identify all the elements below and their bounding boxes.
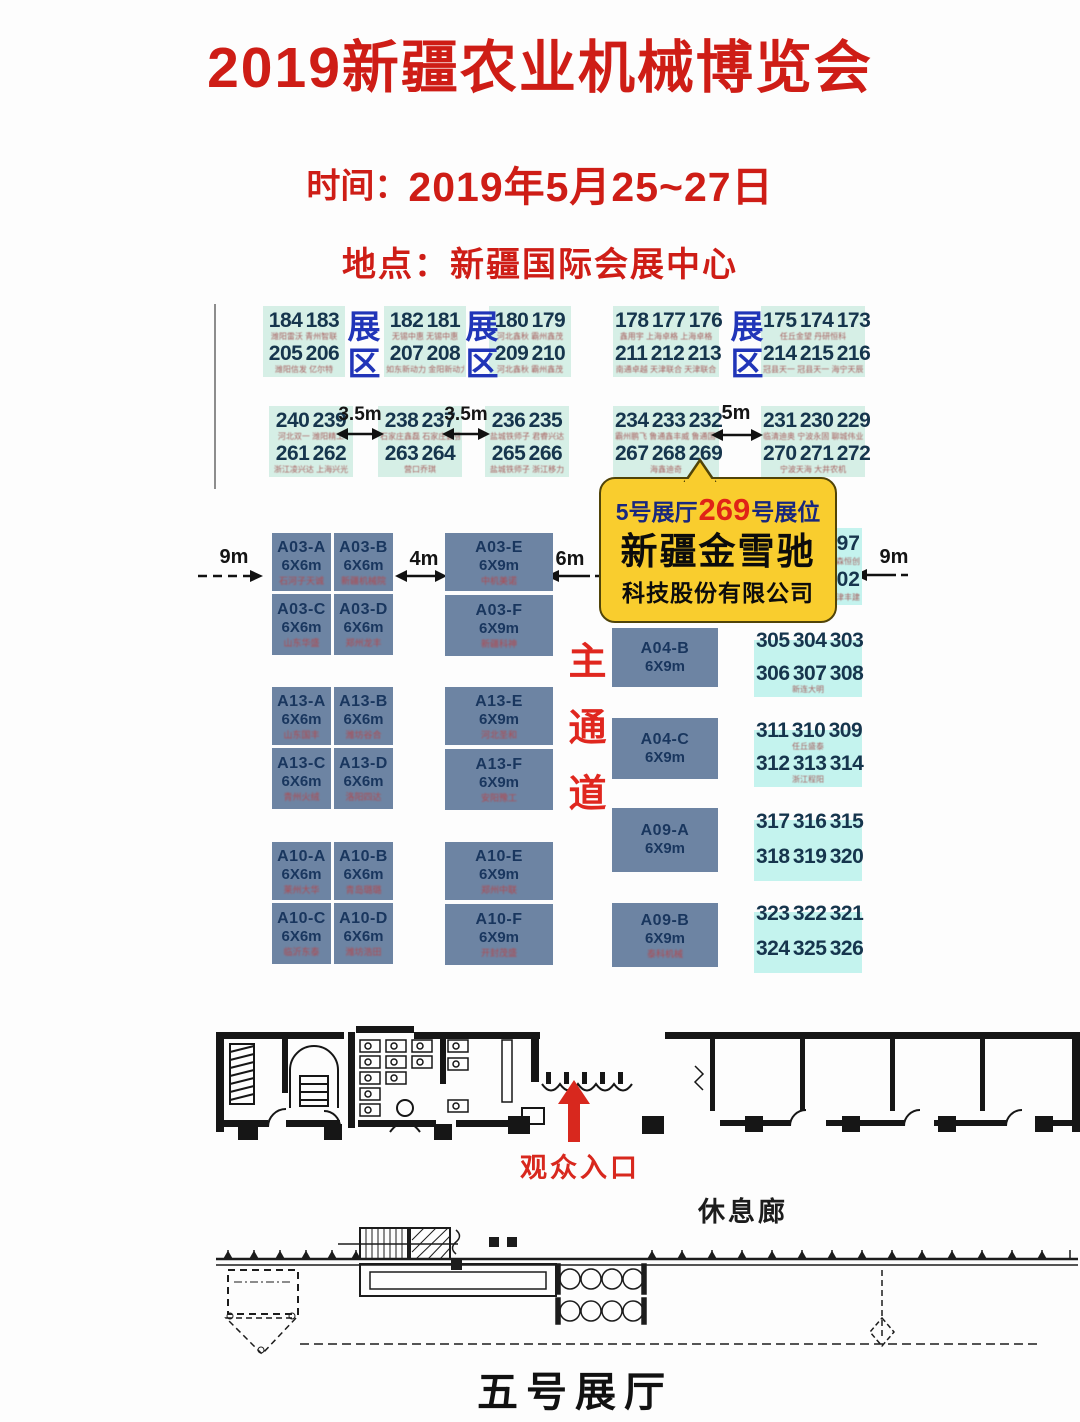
booth-cell: A10-D 6X6m 潍坊浩田 — [334, 903, 393, 964]
booth-cell: A03-A 6X6m 石河子天诚 — [272, 533, 331, 591]
booth-size: 6X6m — [281, 711, 321, 729]
booth-exhibitor-caption: 临清迪奥 宁波永固 聊城伟业 — [763, 432, 863, 442]
booth-exhibitor-caption: 南通卓越 天津联合 天津联合 — [615, 365, 717, 375]
booth-size: 6X6m — [343, 557, 383, 575]
booth-exhibitor-caption: 鑫用宇 上海卓格 上海卓格 — [615, 332, 717, 342]
booth-exhibitor-caption — [756, 652, 860, 662]
dimension-label-3-5m: 3.5m — [444, 404, 488, 426]
booth-id: A03-C — [277, 600, 326, 619]
booth-exhibitor-caption: 郑州龙丰 — [345, 638, 381, 649]
booth-cell: A10-A 6X6m 莱州大华 — [272, 842, 331, 900]
booth-size: 6X6m — [281, 557, 321, 575]
booth-numbers-row: 211 212 213 — [615, 342, 717, 365]
dimension-label-9m: 9m — [212, 546, 256, 569]
booth-cell: A13-C 6X6m 青州火绒 — [272, 748, 331, 809]
booth-id: A09-A — [641, 821, 690, 840]
zone-label: 展区 — [726, 309, 762, 383]
zone-label: 展区 — [461, 309, 497, 383]
booth-size: 6X6m — [343, 928, 383, 946]
booth-id: A10-E — [475, 847, 523, 866]
booth-exhibitor-caption: 霸州鹏飞 鲁通鑫丰威 鲁通国丰威 — [615, 432, 717, 442]
dimension-label-4m: 4m — [402, 548, 446, 571]
booth-number-block: 323 322 321 324 325 326 — [754, 898, 862, 973]
booth-id: A04-B — [641, 639, 690, 658]
booth-id: A10-C — [277, 909, 326, 928]
booth-exhibitor-caption: 盐城铁师子 浙江移力 — [487, 465, 567, 475]
dimension-label-9m: 9m — [872, 546, 916, 569]
main-aisle-label: 主通道 — [556, 641, 611, 839]
booth-numbers-row: 324 325 326 — [756, 936, 860, 961]
event-venue-row: 地点：新疆国际会展中心 — [0, 237, 1080, 286]
booth-numbers-row: 214 215 216 — [763, 342, 863, 365]
booth-numbers-row: 318 319 320 — [756, 844, 860, 869]
booth-cell: A04-C 6X9m — [612, 718, 718, 779]
booth-cell: A03-F 6X9m 新疆科神 — [445, 595, 553, 656]
booth-size: 6X6m — [281, 773, 321, 791]
dashed-left-arrow-icon — [854, 568, 914, 582]
booth-numbers-row: 205 206 — [265, 342, 343, 365]
booth-exhibitor-caption: 浙江程阳 — [756, 775, 860, 785]
callout-booth-line: 5号展厅269号展位 — [601, 492, 835, 528]
dimension-label-3-5m: 3.5m — [338, 404, 382, 426]
booth-id: A10-A — [277, 847, 326, 866]
booth-numbers-row: 182 181 — [386, 309, 464, 332]
booth-numbers-row: 178 177 176 — [615, 309, 717, 332]
booth-id: A03-E — [475, 538, 523, 557]
booth-size: 6X6m — [343, 773, 383, 791]
booth-id: A13-D — [339, 754, 388, 773]
booth-numbers-row: 263 264 — [380, 442, 460, 465]
booth-exhibitor-caption: 潍坊浩田 — [345, 947, 381, 958]
booth-id: A10-B — [339, 847, 388, 866]
booth-exhibitor-caption — [756, 926, 860, 936]
event-time-row: 时间：2019年5月25~27日 — [0, 153, 1080, 213]
map-edge-line — [214, 304, 216, 489]
booth-exhibitor-caption: 临沂东泰 — [283, 947, 319, 958]
booth-exhibitor-caption — [756, 834, 860, 844]
booth-id: A03-B — [339, 538, 388, 557]
booth-cell: A13-B 6X6m 潍坊谷合 — [334, 687, 393, 745]
booth-id: A13-E — [475, 692, 523, 711]
booth-exhibitor-caption: 潍阳信发 亿尔特 — [265, 365, 343, 375]
booth-cell: A09-B 6X9m 泰科机械 — [612, 903, 718, 967]
callout-suffix: 号展位 — [751, 499, 820, 525]
booth-exhibitor-caption: 河北鑫秋 霸州鑫茂 — [491, 365, 569, 375]
hall-name-label: 五号展厅 — [420, 1358, 730, 1418]
double-arrow-icon — [710, 428, 764, 442]
booth-cell: A10-F 6X9m 开封茂盛 — [445, 904, 553, 965]
dimension-label-5m: 5m — [714, 402, 758, 425]
booth-numbers-row: 270 271 272 — [763, 442, 863, 465]
booth-exhibitor-caption: 青岛璐璐 — [345, 885, 381, 896]
booth-size: 6X9m — [479, 774, 519, 792]
booth-number-block: 180 179 河北鑫秋 霸州鑫茂 209 210 河北鑫秋 霸州鑫茂 — [489, 306, 571, 377]
booth-numbers-row: 209 210 — [491, 342, 569, 365]
booth-numbers-row: 306 307 308 — [756, 662, 860, 685]
booth-numbers-row: 312 313 314 — [756, 752, 860, 775]
booth-numbers-row: 207 208 — [386, 342, 464, 365]
double-arrow-icon — [442, 427, 490, 441]
booth-exhibitor-caption — [756, 869, 860, 879]
booth-size: 6X9m — [645, 658, 685, 676]
booth-column-a13: A13-E 6X9m 河北圣和 A13-F 6X9m 安阳豫工 — [445, 687, 553, 810]
booth-cell: A13-E 6X9m 河北圣和 — [445, 687, 553, 745]
booth-numbers-row: 180 179 — [491, 309, 569, 332]
booth-id: A13-B — [339, 692, 388, 711]
page-title: 2019新疆农业机械博览会 — [0, 22, 1080, 104]
booth-numbers-row: 317 316 315 — [756, 809, 860, 834]
booth-id: A03-F — [476, 601, 523, 620]
booth-cell: A03-C 6X6m 山东华盛 — [272, 594, 331, 655]
booth-number-block: 182 181 无锡中惠 无锡中惠 207 208 如东新动力 金阳新动力 — [384, 306, 466, 377]
booth-id: A13-A — [277, 692, 326, 711]
booth-numbers-row: 305 304 303 — [756, 629, 860, 652]
zone-label: 展区 — [343, 309, 379, 383]
booth-exhibitor-caption: 浙江凌兴达 上海兴光 — [271, 465, 351, 475]
booth-cell: A09-A 6X9m — [612, 808, 718, 872]
booth-numbers-row: 175 174 173 — [763, 309, 863, 332]
booth-size: 6X9m — [479, 929, 519, 947]
booth-exhibitor-caption: 中机美诺 — [481, 576, 517, 587]
booth-numbers-row: 311 310 309 — [756, 719, 860, 742]
dimension-label-6m: 6m — [550, 548, 590, 571]
venue-value: 新疆国际会展中心 — [450, 246, 738, 284]
booth-exhibitor-caption: 河北鑫秋 霸州鑫茂 — [491, 332, 569, 342]
booth-cell: A10-E 6X9m 郑州中联 — [445, 842, 553, 900]
booth-exhibitor-caption: 泰科机械 — [647, 949, 683, 960]
booth-exhibitor-caption: 任丘金望 丹研恒科 — [763, 332, 863, 342]
booth-exhibitor-caption: 新连大明 — [756, 685, 860, 695]
booth-numbers-row: 261 262 — [271, 442, 351, 465]
booth-id: A13-F — [476, 755, 523, 774]
booth-number-block: 231 230 229 临清迪奥 宁波永固 聊城伟业 270 271 272 宁… — [761, 406, 865, 477]
time-label: 时间： — [306, 168, 408, 206]
booth-exhibitor-caption: 无锡中惠 无锡中惠 — [386, 332, 464, 342]
booth-grid-a13: A13-A 6X6m 山东国丰 A13-B 6X6m 潍坊谷合 A13-C 6X… — [272, 687, 393, 809]
booth-column-a10: A10-E 6X9m 郑州中联 A10-F 6X9m 开封茂盛 — [445, 842, 553, 965]
booth-exhibitor-caption: 郑州中联 — [481, 885, 517, 896]
booth-column-a03: A03-E 6X9m 中机美诺 A03-F 6X9m 新疆科神 — [445, 533, 553, 656]
booth-grid-a10: A10-A 6X6m 莱州大华 A10-B 6X6m 青岛璐璐 A10-C 6X… — [272, 842, 393, 964]
booth-numbers-row: 323 322 321 — [756, 901, 860, 926]
booth-exhibitor-caption: 石河子天诚 — [279, 576, 324, 587]
booth-exhibitor-caption: 山东华盛 — [283, 638, 319, 649]
booth-number-block: 311 310 309 任丘盛泰 312 313 314 浙江程阳 — [754, 716, 862, 787]
booth-size: 6X9m — [645, 749, 685, 767]
booth-size: 6X9m — [479, 711, 519, 729]
booth-id: A03-A — [277, 538, 326, 557]
booth-size: 6X6m — [343, 866, 383, 884]
venue-label: 地点： — [342, 246, 450, 284]
booth-cell: A13-D 6X6m 洛阳四达 — [334, 748, 393, 809]
booth-exhibitor-caption: 安阳豫工 — [481, 793, 517, 804]
booth-size: 6X6m — [281, 928, 321, 946]
booth-size: 6X6m — [281, 619, 321, 637]
booth-number-block: 178 177 176 鑫用宇 上海卓格 上海卓格 211 212 213 南通… — [613, 306, 719, 377]
booth-size: 6X9m — [479, 557, 519, 575]
booth-id: A03-D — [339, 600, 388, 619]
booth-size: 6X9m — [645, 840, 685, 858]
booth-number-block: 175 174 173 任丘金望 丹研恒科 214 215 216 冠县天一 冠… — [761, 306, 865, 377]
booth-size: 6X6m — [343, 711, 383, 729]
booth-number-block: 184 183 潍阳雷沃 青州智联 205 206 潍阳信发 亿尔特 — [263, 306, 345, 377]
booth-cell: A13-F 6X9m 安阳豫工 — [445, 749, 553, 810]
booth-exhibitor-caption: 山东国丰 — [283, 730, 319, 741]
booth-exhibitor-caption: 如东新动力 金阳新动力 — [386, 365, 464, 375]
booth-exhibitor-caption: 宁波天海 大井农机 — [763, 465, 863, 475]
booth-id: A10-F — [476, 910, 523, 929]
exhibitor-callout: 5号展厅269号展位 新疆金雪驰 科技股份有限公司 — [599, 477, 837, 623]
double-arrow-icon — [336, 427, 384, 441]
booth-id: A04-C — [641, 730, 690, 749]
booth-exhibitor-caption: 新疆机械院 — [341, 576, 386, 587]
callout-company-suffix: 科技股份有限公司 — [601, 574, 835, 608]
booth-numbers-row: 265 266 — [487, 442, 567, 465]
booth-exhibitor-caption: 青州火绒 — [283, 792, 319, 803]
booth-exhibitor-caption: 营口乔琪 — [380, 465, 460, 475]
entrance-label: 观众入口 — [500, 1146, 660, 1185]
booth-exhibitor-caption: 任丘盛泰 — [756, 742, 860, 752]
booth-numbers-row: 184 183 — [265, 309, 343, 332]
booth-size: 6X6m — [281, 866, 321, 884]
booth-exhibitor-caption: 盐城铁师子 君睿兴达 — [487, 432, 567, 442]
booth-id: A13-C — [277, 754, 326, 773]
corridor-floorplan-drawing — [190, 1212, 1080, 1360]
callout-hall: 5号展厅 — [616, 499, 698, 525]
booth-id: A09-B — [641, 911, 690, 930]
booth-grid-a03: A03-A 6X6m 石河子天诚 A03-B 6X6m 新疆机械院 A03-C … — [272, 533, 393, 655]
booth-numbers-row: 234 233 232 — [615, 409, 717, 432]
booth-number-block: 236 235 盐城铁师子 君睿兴达 265 266 盐城铁师子 浙江移力 — [485, 406, 569, 477]
booth-cell: A13-A 6X6m 山东国丰 — [272, 687, 331, 745]
expo-floorplan-poster: 2019新疆农业机械博览会 时间：2019年5月25~27日 地点：新疆国际会展… — [0, 0, 1080, 1422]
booth-exhibitor-caption: 莱州大华 — [283, 885, 319, 896]
booth-exhibitor-caption: 冠县天一 冠县天一 海宁天辰 — [763, 365, 863, 375]
time-value: 2019年5月25~27日 — [408, 164, 773, 210]
booth-size: 6X9m — [645, 930, 685, 948]
callout-pointer-icon — [683, 458, 717, 482]
booth-exhibitor-caption: 洛阳四达 — [345, 792, 381, 803]
booth-exhibitor-caption: 新疆科神 — [481, 639, 517, 650]
booth-size: 6X9m — [479, 866, 519, 884]
booth-id: A10-D — [339, 909, 388, 928]
booth-number-block: 317 316 315 318 319 320 — [754, 806, 862, 881]
double-arrow-icon — [394, 569, 448, 583]
booth-cell: A03-E 6X9m 中机美诺 — [445, 533, 553, 591]
booth-number-block: 305 304 303 306 307 308 新连大明 — [754, 626, 862, 697]
booth-cell: A03-B 6X6m 新疆机械院 — [334, 533, 393, 591]
booth-numbers-row: 236 235 — [487, 409, 567, 432]
booth-size: 6X6m — [343, 619, 383, 637]
callout-booth-number: 269 — [698, 492, 752, 527]
booth-numbers-row: 231 230 229 — [763, 409, 863, 432]
booth-exhibitor-caption: 潍坊谷合 — [345, 730, 381, 741]
booth-cell: A03-D 6X6m 郑州龙丰 — [334, 594, 393, 655]
booth-cell: A04-B 6X9m — [612, 628, 718, 687]
booth-exhibitor-caption: 开封茂盛 — [481, 948, 517, 959]
callout-company-name: 新疆金雪驰 — [601, 532, 835, 572]
booth-exhibitor-caption: 潍阳雷沃 青州智联 — [265, 332, 343, 342]
booth-exhibitor-caption — [756, 961, 860, 971]
booth-exhibitor-caption: 河北圣和 — [481, 730, 517, 741]
booth-cell: A10-C 6X6m 临沂东泰 — [272, 903, 331, 964]
booth-size: 6X9m — [479, 620, 519, 638]
booth-cell: A10-B 6X6m 青岛璐璐 — [334, 842, 393, 900]
dashed-right-arrow-icon — [196, 569, 264, 583]
